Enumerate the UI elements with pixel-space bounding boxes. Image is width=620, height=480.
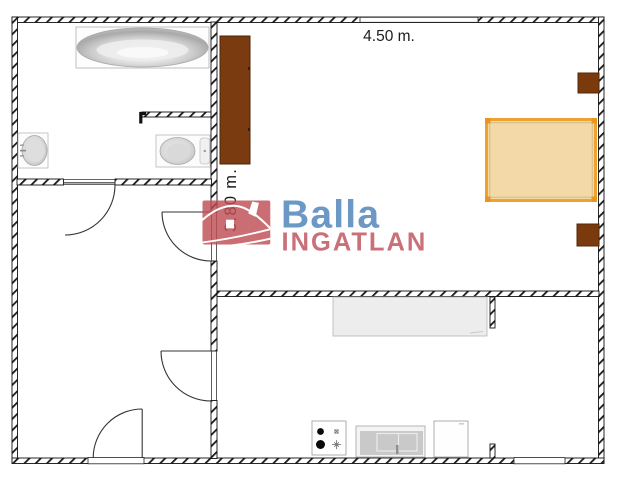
svg-text:INGATLAN: INGATLAN [282, 229, 428, 257]
svg-text:4.50 m.: 4.50 m. [363, 28, 415, 45]
